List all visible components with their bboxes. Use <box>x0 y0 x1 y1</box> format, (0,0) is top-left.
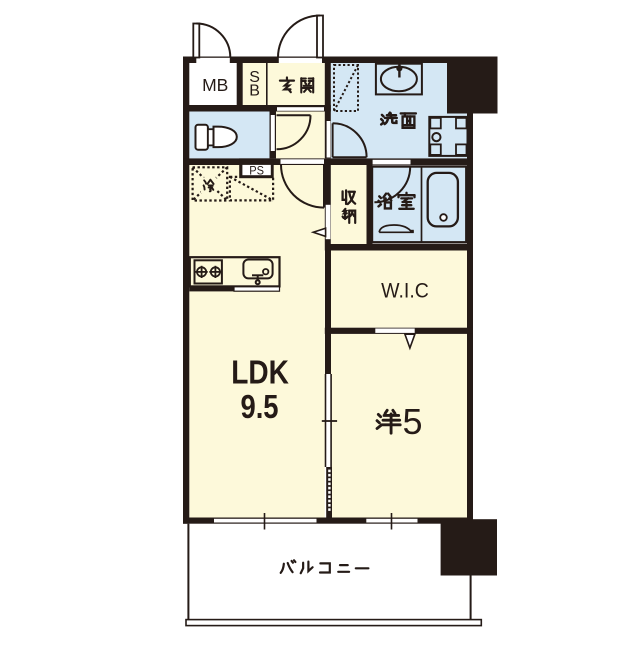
svg-text:LDK: LDK <box>231 354 289 391</box>
svg-text:B: B <box>249 82 260 99</box>
svg-text:PS: PS <box>249 164 264 178</box>
svg-text:MB: MB <box>202 75 228 95</box>
svg-text:9.5: 9.5 <box>240 390 278 426</box>
svg-text:W.I.C: W.I.C <box>381 280 429 303</box>
svg-text:5: 5 <box>402 401 422 442</box>
